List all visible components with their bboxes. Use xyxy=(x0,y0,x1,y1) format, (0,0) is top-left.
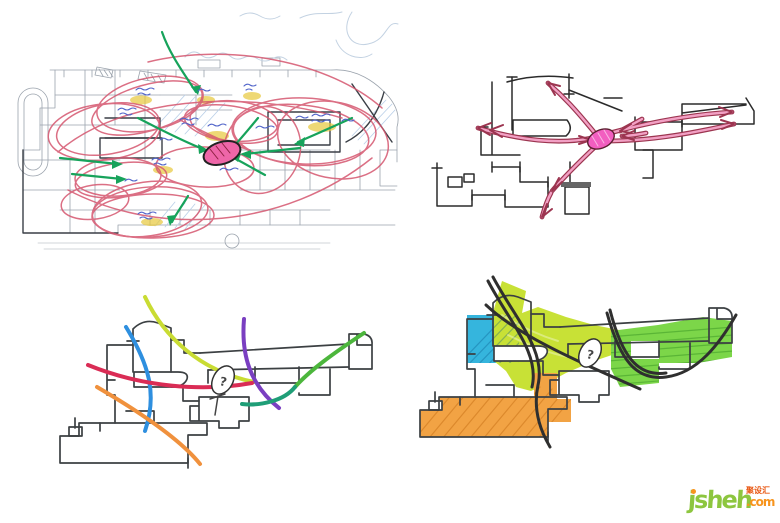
flows-sketch: ? xyxy=(42,275,402,490)
watermark-dot-icon xyxy=(691,489,696,494)
watermark-side: 聚设汇 .com xyxy=(746,487,780,508)
plan-sketch xyxy=(0,0,420,270)
sketch-collage: ? xyxy=(0,0,780,523)
radial-arrows-inner xyxy=(478,83,734,217)
radial-sketch xyxy=(408,32,768,262)
radial-arrows-outer xyxy=(478,83,734,217)
radial-hatch-bar xyxy=(561,182,591,187)
watermark-suffix: .com xyxy=(746,496,780,508)
radial-arrowheads xyxy=(478,83,734,217)
watermark: jsheh 聚设汇 .com xyxy=(688,486,780,520)
watermark-logo: jsheh xyxy=(687,486,752,514)
watermark-badge: 聚设汇 xyxy=(746,487,780,495)
zones-sketch: ? xyxy=(398,265,780,480)
